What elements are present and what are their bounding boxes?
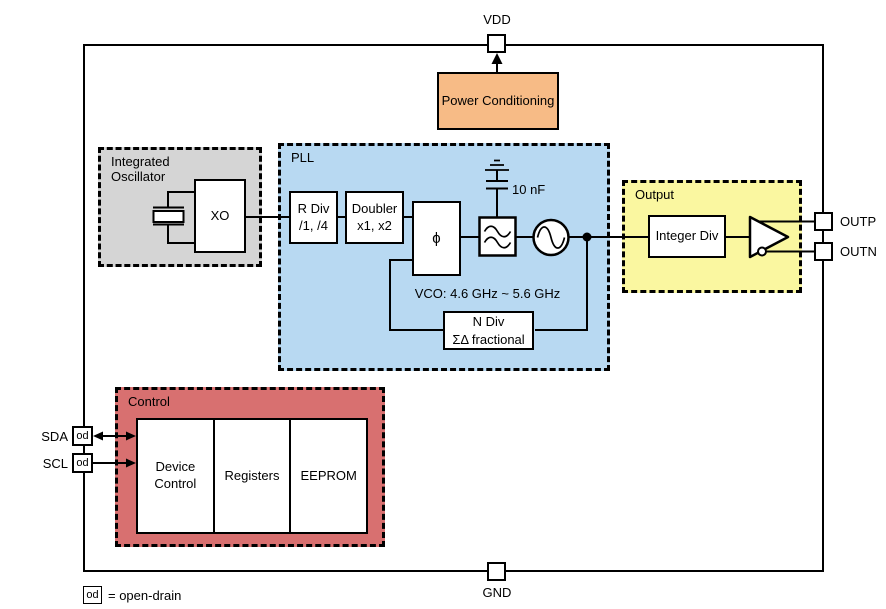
control-inner-blocks: Device Control Registers EEPROM bbox=[136, 418, 368, 534]
power-conditioning-block: Power Conditioning bbox=[437, 72, 559, 130]
outn-pin bbox=[814, 242, 833, 261]
integer-div-block: Integer Div bbox=[648, 215, 726, 258]
doubler-line1: Doubler bbox=[352, 201, 398, 218]
phase-detector-block: ϕ bbox=[412, 201, 461, 276]
clock-ic-block-diagram: Integrated Oscillator PLL Output Control bbox=[0, 0, 886, 609]
vdd-pin-label: VDD bbox=[467, 12, 527, 27]
legend-open-drain-text: = open-drain bbox=[108, 588, 181, 603]
gnd-pin bbox=[487, 562, 506, 581]
vdd-pin bbox=[487, 34, 506, 53]
registers-block: Registers bbox=[213, 420, 290, 532]
doubler-line2: x1, x2 bbox=[357, 218, 392, 235]
eeprom-block: EEPROM bbox=[289, 420, 366, 532]
power-conditioning-label: Power Conditioning bbox=[442, 93, 555, 110]
capacitor-value-label: 10 nF bbox=[512, 182, 545, 197]
device-control-block: Device Control bbox=[138, 420, 213, 532]
sda-open-drain-pin: od bbox=[72, 426, 93, 446]
r-div-line2: /1, /4 bbox=[299, 218, 328, 235]
outn-pin-label: OUTN bbox=[840, 244, 877, 259]
outp-pin-label: OUTP bbox=[840, 214, 876, 229]
scl-open-drain-pin: od bbox=[72, 453, 93, 473]
n-div-line1: N Div bbox=[473, 313, 505, 331]
doubler-block: Doubler x1, x2 bbox=[345, 191, 404, 244]
vco-range-label: VCO: 4.6 GHz ~ 5.6 GHz bbox=[405, 286, 570, 301]
n-div-block: N Div ΣΔ fractional bbox=[443, 311, 534, 350]
r-div-line1: R Div bbox=[298, 201, 330, 218]
integer-div-label: Integer Div bbox=[656, 228, 719, 245]
phi-symbol: ϕ bbox=[432, 229, 440, 249]
region-label-control: Control bbox=[128, 394, 170, 409]
xo-label: XO bbox=[211, 208, 230, 225]
scl-pin-label: SCL bbox=[28, 456, 68, 471]
r-div-block: R Div /1, /4 bbox=[289, 191, 338, 244]
outp-pin bbox=[814, 212, 833, 231]
region-label-pll: PLL bbox=[291, 150, 314, 165]
n-div-line2: ΣΔ fractional bbox=[452, 331, 524, 349]
legend-od-symbol: od bbox=[83, 586, 102, 604]
sda-pin-label: SDA bbox=[28, 429, 68, 444]
xo-block: XO bbox=[194, 179, 246, 253]
region-label-output: Output bbox=[635, 187, 674, 202]
region-label-integrated-oscillator: Integrated Oscillator bbox=[111, 154, 197, 184]
gnd-pin-label: GND bbox=[467, 585, 527, 600]
